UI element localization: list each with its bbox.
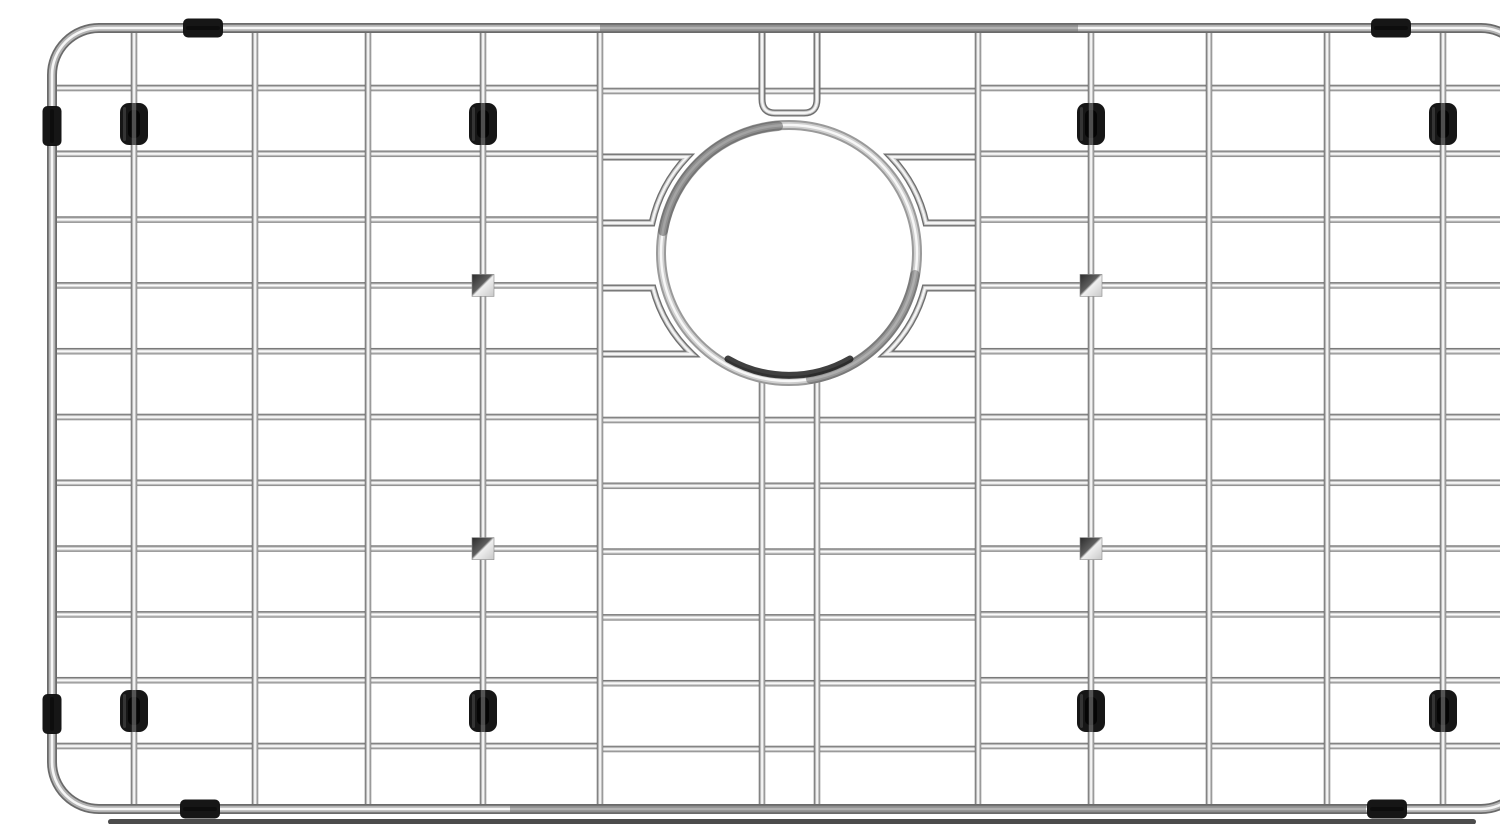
product-photo: Stainless steel kitchen sink bottom grid… [40,16,1500,824]
horizontal-wires [52,85,1500,753]
sink-grid-image [40,16,1500,824]
floor-shadow [108,819,1476,824]
drain-hairpin-wires [597,157,981,354]
drain-ring [661,125,917,381]
